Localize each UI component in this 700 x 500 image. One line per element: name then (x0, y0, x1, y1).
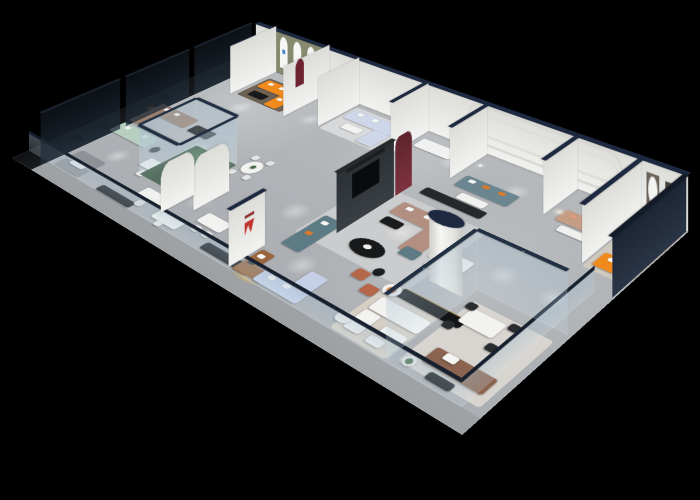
wine-red-curved-panel (395, 129, 412, 196)
arch-logo (282, 49, 285, 54)
dining-chair (250, 155, 261, 161)
brand-logo-red (245, 218, 254, 236)
dining-chair (264, 160, 276, 166)
showroom-render (0, 0, 700, 500)
dining-chair (240, 174, 252, 180)
brand-logo-text (245, 211, 254, 219)
downlight (478, 164, 483, 167)
floor-plate (12, 57, 688, 435)
